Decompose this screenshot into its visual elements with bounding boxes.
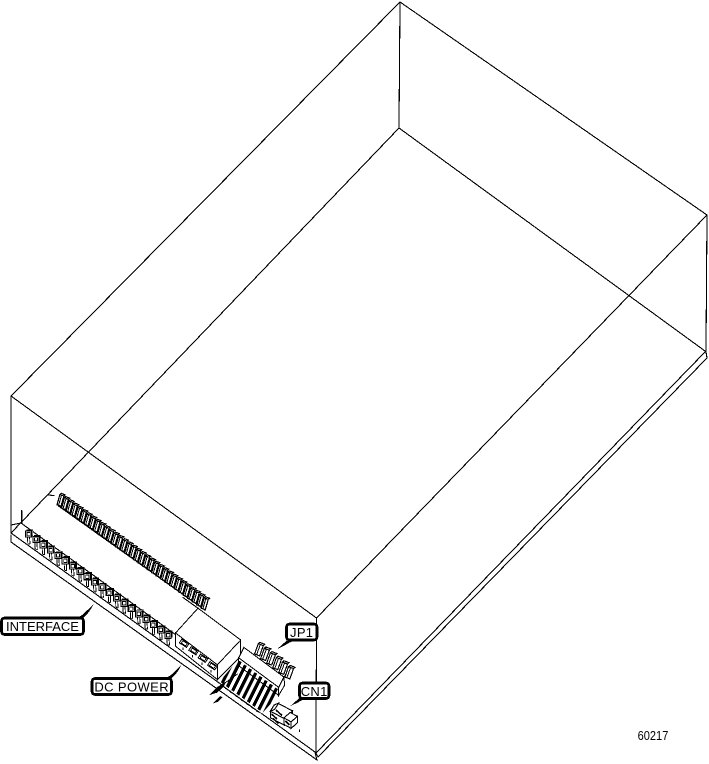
svg-text:DC POWER: DC POWER xyxy=(94,680,169,695)
svg-text:CN1: CN1 xyxy=(301,684,328,699)
svg-text:JP1: JP1 xyxy=(290,625,313,640)
svg-text:INTERFACE: INTERFACE xyxy=(6,619,79,634)
svg-text:60217: 60217 xyxy=(638,728,669,743)
